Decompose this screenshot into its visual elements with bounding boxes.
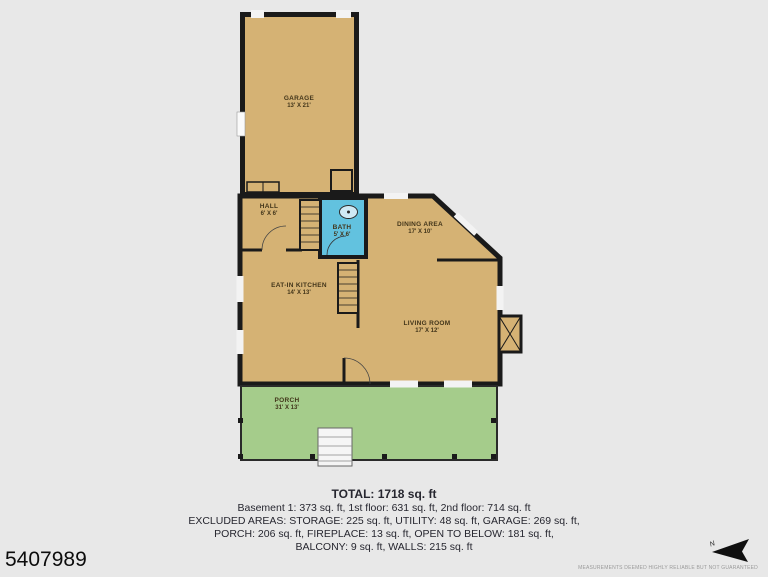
garage-name: GARAGE (284, 95, 314, 103)
living-dims: 17' X 12' (404, 328, 451, 336)
porch-name: PORCH (275, 397, 300, 405)
bath-label: BATH 5' X 6' (333, 224, 352, 240)
porch-post (491, 454, 496, 459)
hall-label: HALL 6' X 6' (260, 203, 279, 219)
garage-door-gap-left (251, 10, 264, 18)
bath-dims: 5' X 6' (333, 232, 352, 240)
dining-dims: 17' X 10' (397, 229, 443, 237)
disclaimer-text: MEASUREMENTS DEEMED HIGHLY RELIABLE BUT … (578, 565, 758, 571)
bath-name: BATH (333, 224, 352, 232)
porch-dims: 31' X 13' (275, 405, 300, 413)
kitchen-name: EAT-IN KITCHEN (271, 282, 327, 290)
porch-post (310, 454, 315, 459)
living-name: LIVING ROOM (404, 320, 451, 328)
sink-drain-icon (347, 211, 350, 214)
garage-window (237, 112, 245, 136)
porch-post (452, 454, 457, 459)
listing-id: 5407989 (5, 548, 87, 572)
stairs-main (338, 263, 358, 313)
garage-label: GARAGE 13' X 21' (284, 95, 314, 111)
excluded-line-2: PORCH: 206 sq. ft, FIREPLACE: 13 sq. ft,… (0, 528, 768, 541)
excluded-line-3: BALCONY: 9 sq. ft, WALLS: 215 sq. ft (0, 541, 768, 554)
living-label: LIVING ROOM 17' X 12' (404, 320, 451, 336)
porch-post (238, 454, 243, 459)
porch-post (491, 418, 496, 423)
kitchen-label: EAT-IN KITCHEN 14' X 13' (271, 282, 327, 298)
porch-post (382, 454, 387, 459)
hall-name: HALL (260, 203, 279, 211)
porch-steps (318, 428, 352, 466)
porch-post (238, 418, 243, 423)
dining-name: DINING AREA (397, 221, 443, 229)
garage-storage-box (331, 170, 352, 191)
garage-dims: 13' X 21' (284, 103, 314, 111)
porch-label: PORCH 31' X 13' (275, 397, 300, 413)
excluded-line-1: EXCLUDED AREAS: STORAGE: 225 sq. ft, UTI… (0, 515, 768, 528)
floors-line: Basement 1: 373 sq. ft, 1st floor: 631 s… (0, 502, 768, 515)
total-area: TOTAL: 1718 sq. ft (0, 487, 768, 502)
kitchen-dims: 14' X 13' (271, 290, 327, 298)
area-summary: TOTAL: 1718 sq. ft Basement 1: 373 sq. f… (0, 487, 768, 554)
garage-door-gap-right (336, 10, 351, 18)
dining-label: DINING AREA 17' X 10' (397, 221, 443, 237)
floorplan-canvas: N GARAGE 13' X 21' HALL 6' X 6' BATH 5' … (0, 0, 768, 577)
fireplace (499, 316, 521, 352)
stairs-upper (300, 200, 320, 250)
hall-dims: 6' X 6' (260, 211, 279, 219)
